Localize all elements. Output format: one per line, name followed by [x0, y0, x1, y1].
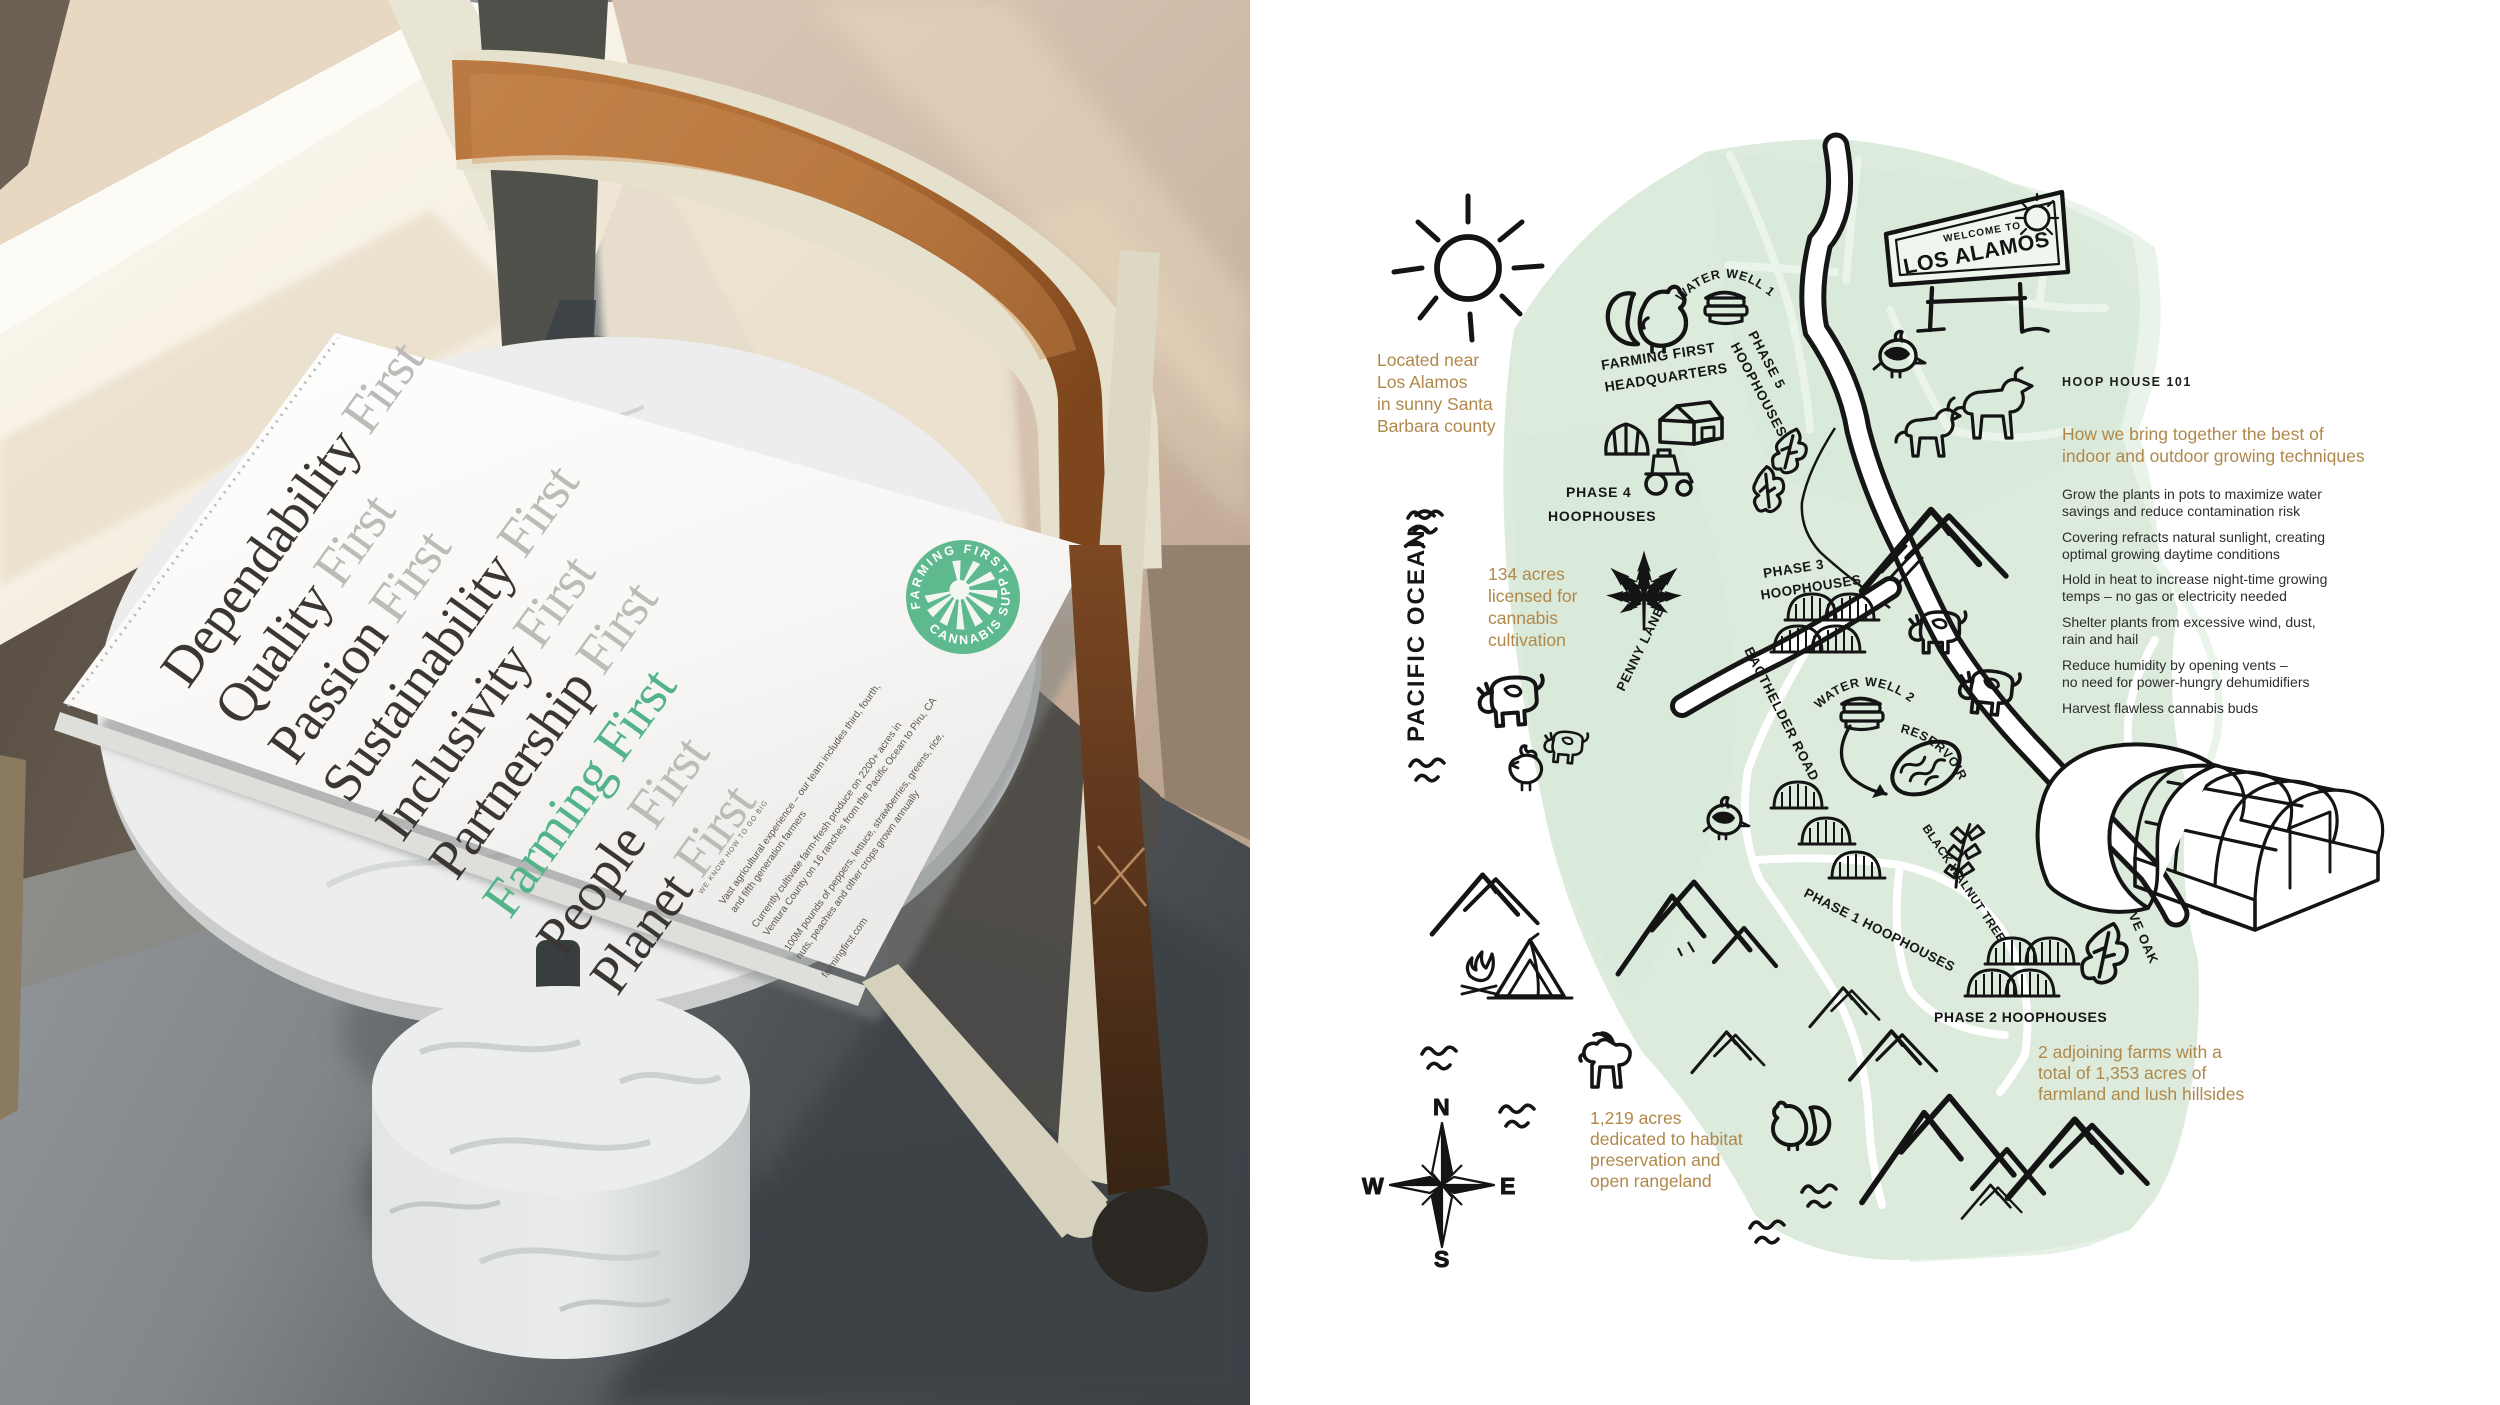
- svg-text:indoor and outdoor growing tec: indoor and outdoor growing techniques: [2062, 446, 2365, 466]
- svg-text:E: E: [1500, 1173, 1515, 1199]
- svg-text:open rangeland: open rangeland: [1590, 1171, 1712, 1191]
- svg-text:Shelter plants from excessive: Shelter plants from excessive wind, dust…: [2062, 614, 2316, 630]
- svg-text:Los Alamos: Los Alamos: [1377, 372, 1468, 392]
- svg-text:S: S: [1434, 1246, 1449, 1272]
- svg-text:PACIFIC OCEAN: PACIFIC OCEAN: [1403, 528, 1430, 742]
- svg-text:licensed for: licensed for: [1488, 586, 1578, 606]
- svg-text:134 acres: 134 acres: [1488, 564, 1565, 584]
- svg-text:rain and hail: rain and hail: [2062, 631, 2138, 647]
- svg-text:cannabis: cannabis: [1488, 608, 1558, 628]
- svg-text:2 adjoining farms with a: 2 adjoining farms with a: [2038, 1042, 2222, 1062]
- svg-text:HOOPHOUSES: HOOPHOUSES: [1548, 508, 1656, 524]
- svg-text:savings and reduce contaminati: savings and reduce contamination risk: [2062, 503, 2301, 519]
- svg-text:HOOP HOUSE 101: HOOP HOUSE 101: [2062, 375, 2192, 389]
- svg-text:Reduce humidity by opening ven: Reduce humidity by opening vents –: [2062, 657, 2288, 673]
- svg-text:farmland and lush hillsides: farmland and lush hillsides: [2038, 1084, 2244, 1104]
- svg-text:Barbara county: Barbara county: [1377, 416, 1496, 436]
- svg-text:PHASE 2 HOOPHOUSES: PHASE 2 HOOPHOUSES: [1934, 1009, 2107, 1025]
- svg-text:PHASE 4: PHASE 4: [1566, 484, 1632, 500]
- svg-text:1,219 acres: 1,219 acres: [1590, 1108, 1682, 1128]
- svg-text:no need for power-hungry dehum: no need for power-hungry dehumidifiers: [2062, 674, 2309, 690]
- svg-text:Harvest flawless cannabis buds: Harvest flawless cannabis buds: [2062, 700, 2258, 716]
- svg-text:Located near: Located near: [1377, 350, 1479, 370]
- svg-text:Grow the plants in pots to max: Grow the plants in pots to maximize wate…: [2062, 486, 2322, 502]
- svg-text:N: N: [1433, 1094, 1450, 1120]
- svg-text:Covering refracts natural sunl: Covering refracts natural sunlight, crea…: [2062, 529, 2325, 545]
- svg-text:W: W: [1362, 1173, 1384, 1199]
- svg-text:total of 1,353 acres of: total of 1,353 acres of: [2038, 1063, 2206, 1083]
- svg-text:Hold in heat to increase night: Hold in heat to increase night-time grow…: [2062, 571, 2327, 587]
- svg-text:dedicated to habitat: dedicated to habitat: [1590, 1129, 1743, 1149]
- svg-text:preservation and: preservation and: [1590, 1150, 1720, 1170]
- svg-text:in sunny Santa: in sunny Santa: [1377, 394, 1493, 414]
- svg-text:temps – no gas or electricity: temps – no gas or electricity needed: [2062, 588, 2287, 604]
- svg-text:How we bring together the best: How we bring together the best of: [2062, 424, 2324, 444]
- svg-text:cultivation: cultivation: [1488, 630, 1566, 650]
- svg-text:optimal growing daytime condit: optimal growing daytime conditions: [2062, 546, 2280, 562]
